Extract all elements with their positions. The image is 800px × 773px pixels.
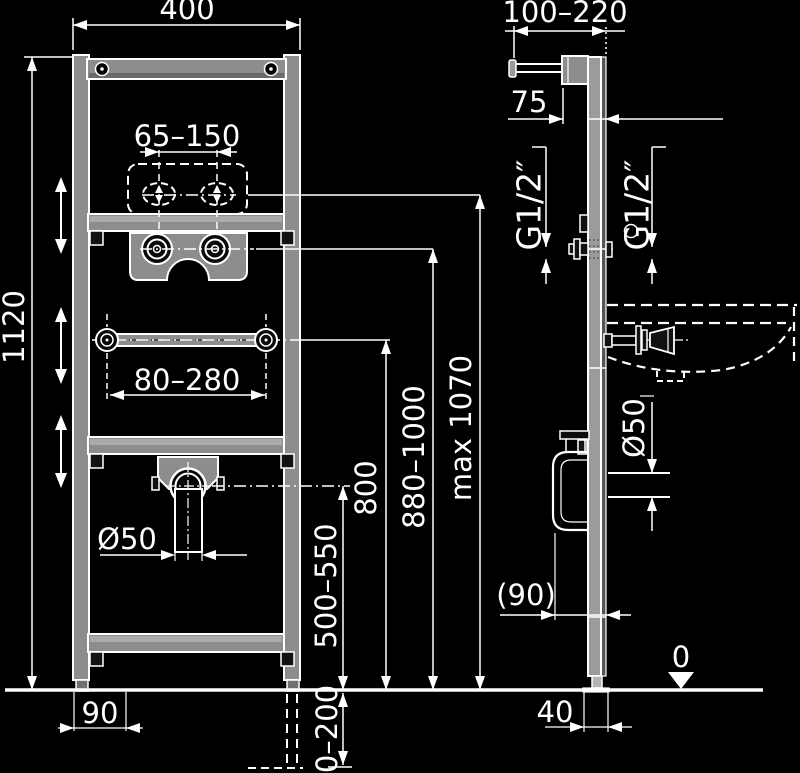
water-connection-plate xyxy=(130,233,254,280)
fixing-cone xyxy=(650,327,674,354)
dim-water-right-label: G1/2″ xyxy=(618,159,657,250)
dim-leg-adjust-label: 0–200 xyxy=(310,685,344,773)
front-right-post xyxy=(284,55,300,680)
dim-tap-max-height: max 1070 xyxy=(444,195,485,690)
dim-rail-height: 800 xyxy=(349,340,391,690)
dim-rail-height-label: 800 xyxy=(349,460,383,515)
dim-drain-diameter-side: Ø50 xyxy=(617,396,657,531)
dim-tap-max-height-label: max 1070 xyxy=(444,355,478,501)
dim-rail-spacing: 80–280 xyxy=(110,363,265,400)
dim-drain-height-label: 500–550 xyxy=(309,523,343,648)
dim-bracket-offset-label: 75 xyxy=(511,85,548,119)
dim-drain-height: 500–550 xyxy=(309,486,348,690)
dim-rail-spacing-label: 80–280 xyxy=(134,363,241,397)
front-left-post xyxy=(73,55,89,680)
leg-extension-dashed xyxy=(248,694,303,768)
dim-bracket-offset: 75 xyxy=(508,85,723,124)
side-profile xyxy=(578,57,609,692)
technical-drawing-canvas: 65–150 xyxy=(0,0,800,773)
floor-level-label: 0 xyxy=(672,640,690,674)
washbasin-frame-diagram: 65–150 xyxy=(0,0,800,773)
wall-bracket xyxy=(509,56,588,84)
dim-front-width: 400 xyxy=(73,0,300,50)
dim-rim-height: 880–1000 xyxy=(397,249,438,690)
adjustability-arrows xyxy=(55,177,67,488)
dim-drain-diameter-front-label: Ø50 xyxy=(97,522,157,556)
floor-level-marker: 0 xyxy=(668,640,694,689)
dim-trap-depth: (90) xyxy=(496,533,631,620)
basin-fixing-rod xyxy=(604,326,690,354)
dim-profile-width: 40 xyxy=(537,692,632,732)
dim-tap-spacing-label: 65–150 xyxy=(134,119,241,153)
drain-outlet-side xyxy=(608,473,670,497)
dim-trap-depth-label: (90) xyxy=(496,578,556,612)
dim-drain-diameter-side-label: Ø50 xyxy=(617,398,651,458)
dim-drain-diameter-front: Ø50 xyxy=(97,522,247,561)
dim-leg-adjust: 0–200 xyxy=(310,685,352,773)
dim-water-left-label: G1/2″ xyxy=(510,159,549,250)
dim-depth-range-label: 100–220 xyxy=(502,0,627,29)
dim-water-left: G1/2″ xyxy=(510,147,552,284)
dim-rim-height-label: 880–1000 xyxy=(397,385,431,529)
side-foot xyxy=(592,676,602,688)
dim-anchor-width-label: 90 xyxy=(82,696,119,730)
dim-depth-range: 100–220 xyxy=(502,0,627,58)
dim-tap-spacing: 65–150 xyxy=(134,119,241,157)
dim-front-height-label: 1120 xyxy=(0,290,31,364)
front-view: 65–150 xyxy=(0,0,352,773)
dim-water-right: G1/2″ xyxy=(618,147,667,284)
dim-anchor-width: 90 xyxy=(58,692,143,733)
dim-front-width-label: 400 xyxy=(159,0,214,26)
dim-profile-width-label: 40 xyxy=(537,695,574,729)
